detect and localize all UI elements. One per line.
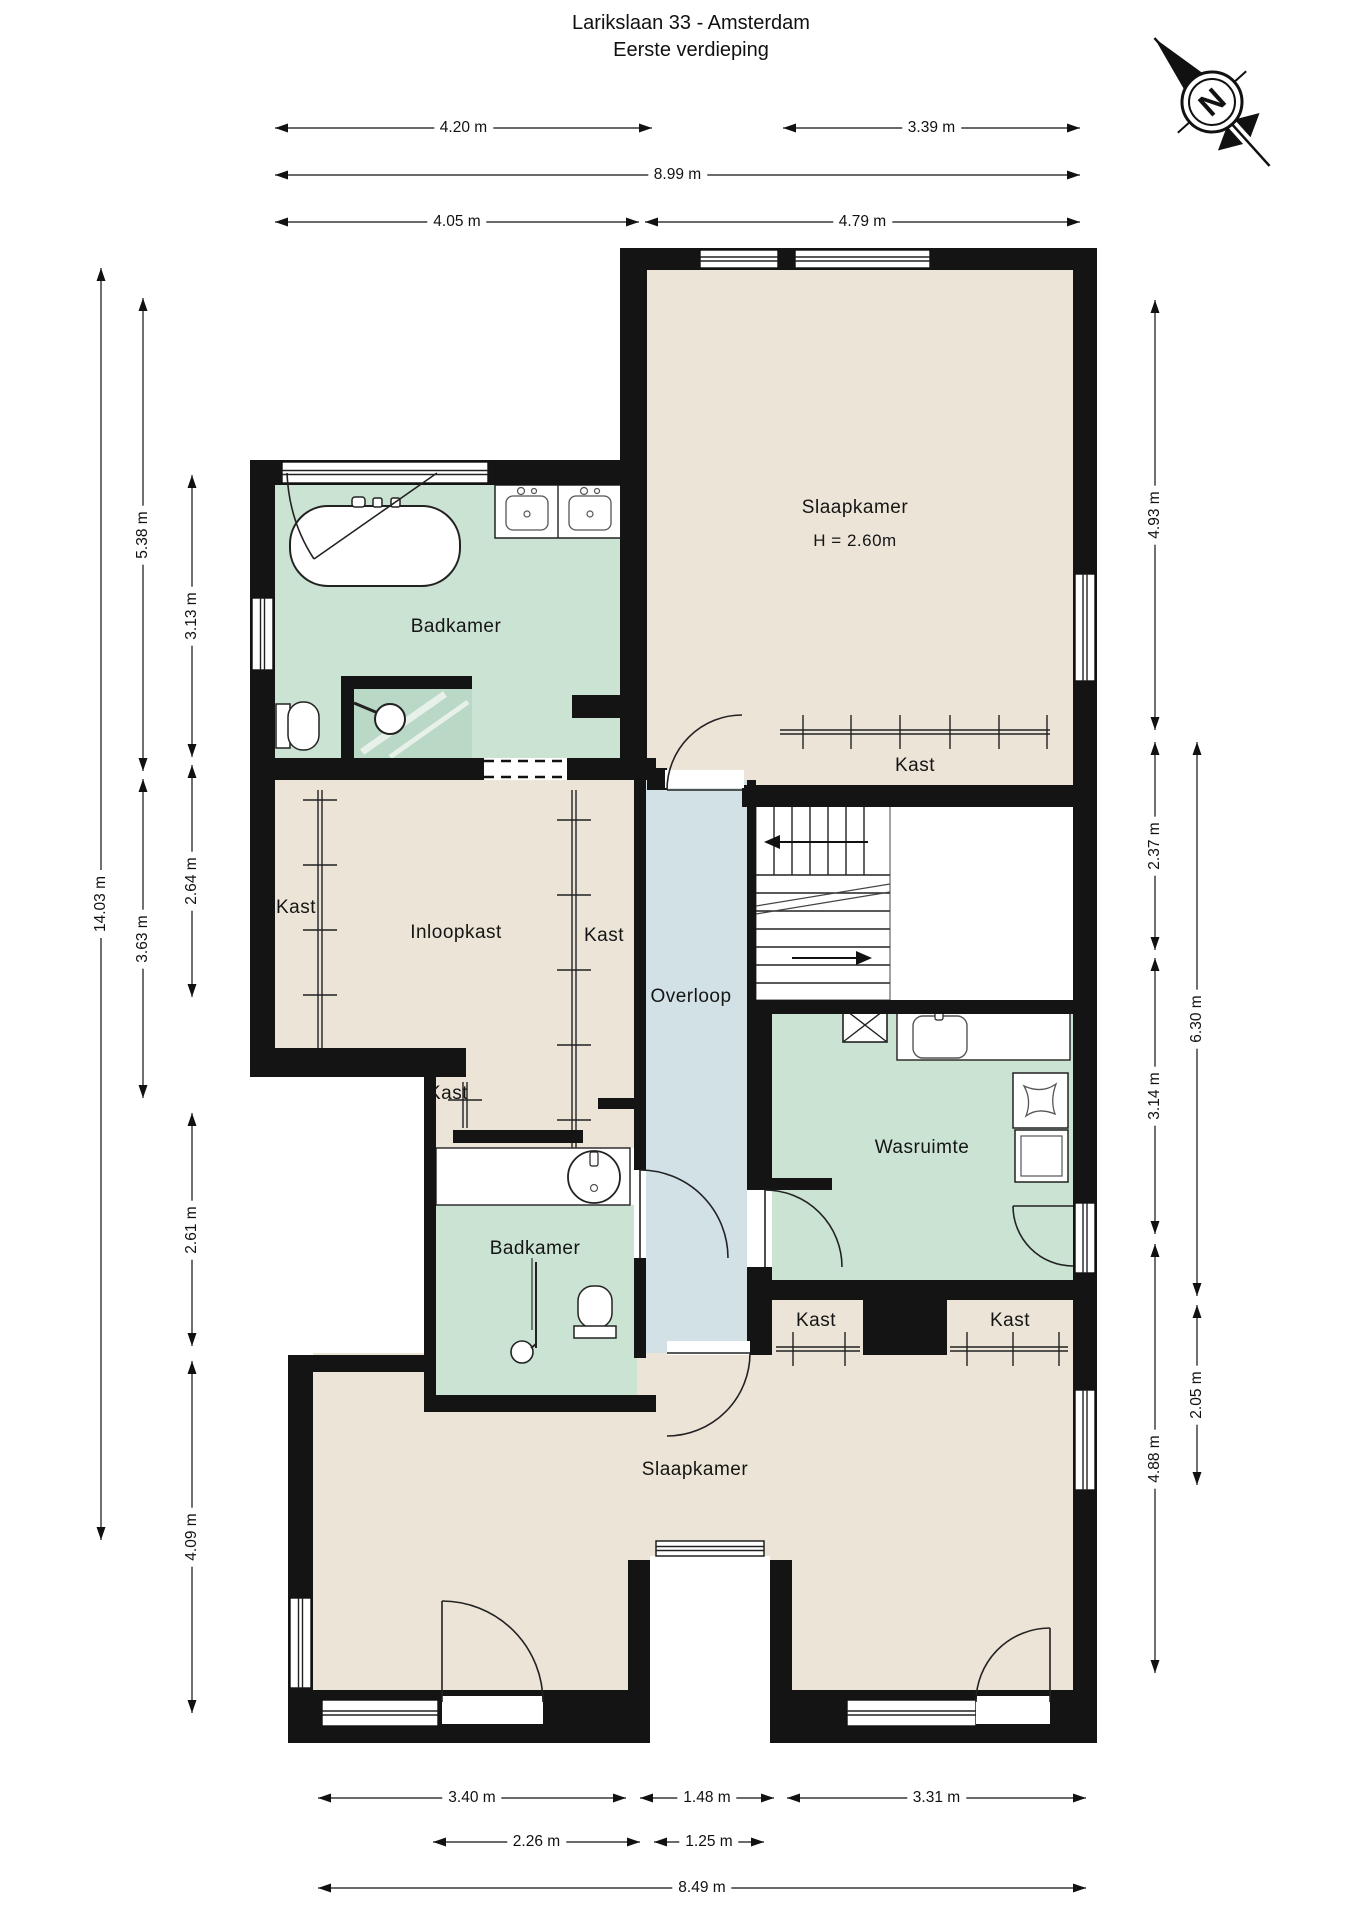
shower-icon [375,704,405,734]
exterior-niche [650,1556,770,1690]
dimension-arrowhead [97,268,106,281]
door-opening [665,770,744,788]
door-opening [747,1190,772,1267]
dimension-label-t4: 4.05 m [427,213,486,231]
dimension-arrowhead [751,1838,764,1847]
dimension-arrowhead [188,475,197,488]
wall [572,695,634,718]
dimension-arrowhead [1151,958,1160,971]
door-opening [976,1696,1050,1724]
wall [770,1560,792,1690]
room-label-badkamer-2: Badkamer [490,1238,581,1260]
dimension-arrowhead [188,765,197,778]
dimension-arrowhead [761,1794,774,1803]
wall [759,1178,832,1190]
dimension-arrowhead [1067,124,1080,133]
dimension-arrowhead [188,1333,197,1346]
dimension-label-t5: 4.79 m [833,213,892,231]
bathtub-faucet [373,498,382,507]
dimension-label-r6: 2.05 m [1188,1365,1206,1424]
wall [1073,248,1097,1743]
dimension-label-r1: 4.93 m [1146,485,1164,544]
dimension-arrowhead [1067,218,1080,227]
dimension-arrowhead [626,218,639,227]
window [1075,574,1095,681]
wall [747,1000,772,1192]
window [322,1700,438,1726]
dimension-arrowhead [627,1838,640,1847]
room-label-wasruimte: Wasruimte [875,1137,970,1159]
toilet-icon [288,702,319,750]
dimension-label-t3: 8.99 m [648,166,707,184]
room-label-kast-bottom-right: Kast [990,1310,1030,1332]
dimension-label-l5: 2.64 m [183,851,201,910]
dimension-arrowhead [1151,300,1160,313]
dimension-label-b3: 3.31 m [907,1789,966,1807]
dimension-label-r5: 6.30 m [1188,989,1206,1048]
window [1075,1203,1095,1273]
dimension-arrowhead [1073,1884,1086,1893]
dimension-label-r4: 4.88 m [1146,1429,1164,1488]
toilet-tank [574,1326,616,1338]
dimension-arrowhead [640,1794,653,1803]
room-label-kast-bedroom-1: Kast [895,755,935,777]
dimension-arrowhead [433,1838,446,1847]
dimension-arrowhead [139,758,148,771]
compass-north-icon: N [1120,7,1303,196]
room-label-overloop: Overloop [650,986,731,1008]
dimension-arrowhead [188,1700,197,1713]
laundry-basket-icon [1013,1073,1068,1128]
wall [424,1395,656,1412]
dimension-arrowhead [139,779,148,792]
room-label-kast-small: Kast [428,1083,468,1105]
dimension-label-b2: 1.48 m [677,1789,736,1807]
room-label-slaapkamer-1: Slaapkamer [802,497,908,519]
dimension-arrowhead [783,124,796,133]
wall [647,768,667,790]
room-label-kast-mid: Kast [584,925,624,947]
dimension-arrowhead [787,1794,800,1803]
dimension-arrowhead [188,984,197,997]
window [282,462,488,483]
dimension-arrowhead [1151,1660,1160,1673]
wall [863,1300,947,1355]
window [795,250,930,268]
staircase-icon [756,800,890,1000]
dimension-label-b1: 3.40 m [442,1789,501,1807]
window [290,1598,311,1688]
wall [453,1130,583,1143]
dimension-arrowhead [139,1085,148,1098]
wall [634,758,646,1358]
dimension-label-l3: 3.63 m [134,909,152,968]
window [847,1700,976,1726]
dimension-label-b5: 1.25 m [679,1833,738,1851]
dimension-arrowhead [1193,742,1202,755]
door-opening [442,1696,543,1724]
dimension-label-l7: 4.09 m [183,1507,201,1566]
room-slaapkamer-1 [647,270,1073,785]
washing-machine-icon [1015,1130,1068,1182]
dimension-arrowhead [188,1361,197,1374]
laundry-counter [897,1010,1070,1060]
dimension-label-b6: 8.49 m [672,1879,731,1897]
window [1075,1390,1095,1490]
room-label-slaapkamer-1-height: H = 2.60m [813,531,896,551]
bathtub-icon [290,506,460,586]
bathtub-faucet [352,497,365,507]
wall [759,1280,1097,1300]
wall [250,780,275,1077]
dimension-arrowhead [318,1884,331,1893]
dimension-arrowhead [188,1113,197,1126]
dimension-arrowhead [275,218,288,227]
dimension-arrowhead [1193,1283,1202,1296]
wall [341,676,472,689]
dimension-arrowhead [1193,1472,1202,1485]
dimension-arrowhead [654,1838,667,1847]
wall [250,1048,466,1077]
window [700,250,778,268]
room-label-badkamer-1: Badkamer [411,616,502,638]
dimension-arrowhead [1151,717,1160,730]
dimension-arrowhead [1073,1794,1086,1803]
wall [341,676,354,765]
dimension-label-b4: 2.26 m [507,1833,566,1851]
dimension-label-l6: 2.61 m [183,1200,201,1259]
shower-icon [511,1341,533,1363]
wall [598,1098,637,1109]
dimension-arrowhead [139,298,148,311]
floor-plan-canvas: N [0,0,1358,1920]
stairwell-void [890,807,1073,985]
room-overloop [646,780,747,1353]
room-label-kast-bottom-left: Kast [796,1310,836,1332]
wall [742,785,1080,807]
dimension-label-l2: 5.38 m [134,505,152,564]
dimension-arrowhead [613,1794,626,1803]
dimension-label-r2: 2.37 m [1146,816,1164,875]
dimension-label-l4: 3.13 m [183,586,201,645]
dimension-arrowhead [1067,171,1080,180]
wall [747,780,756,1002]
dimension-arrowhead [1151,937,1160,950]
dimension-arrowhead [1151,1244,1160,1257]
dimension-label-t2: 3.39 m [902,119,961,137]
dimension-label-l1: 14.03 m [92,870,110,938]
tap-spout [590,1152,598,1166]
room-label-slaapkamer-2: Slaapkamer [642,1459,748,1481]
dimension-arrowhead [275,171,288,180]
window [252,598,273,670]
wall [759,1000,1097,1014]
floor-plan-page: Larikslaan 33 - Amsterdam Eerste verdiep… [0,0,1358,1920]
dimension-label-t1: 4.20 m [434,119,493,137]
wall [250,758,656,780]
toilet-icon [578,1286,612,1328]
dimension-arrowhead [645,218,658,227]
dimension-arrowhead [275,124,288,133]
dimension-arrowhead [318,1794,331,1803]
dimension-arrowhead [97,1527,106,1540]
room-label-kast-left: Kast [276,897,316,919]
dimension-arrowhead [1193,1305,1202,1318]
window [656,1541,764,1556]
dimension-label-r3: 3.14 m [1146,1066,1164,1125]
dimension-arrowhead [1151,742,1160,755]
dimension-arrowhead [188,744,197,757]
room-label-inloopkast: Inloopkast [410,922,502,944]
wall [628,1560,650,1690]
dimension-arrowhead [639,124,652,133]
dimension-arrowhead [1151,1221,1160,1234]
